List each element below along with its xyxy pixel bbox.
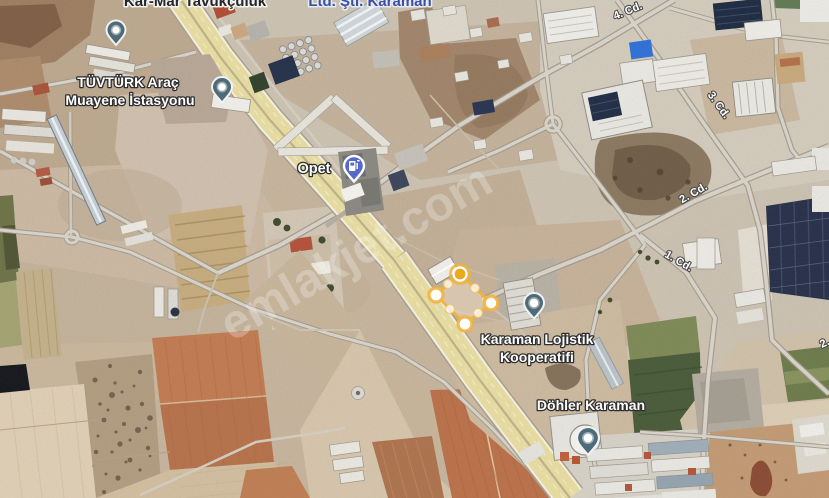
svg-text:Karaman Lojistik: Karaman Lojistik	[481, 331, 594, 347]
svg-text:Muayene İstasyonu: Muayene İstasyonu	[65, 92, 194, 108]
svg-text:Döhler Karaman: Döhler Karaman	[537, 397, 645, 413]
svg-text:Kar-Mar Tavukçuluk: Kar-Mar Tavukçuluk	[124, 0, 267, 10]
svg-text:TÜVTÜRK Araç: TÜVTÜRK Araç	[77, 74, 179, 90]
svg-text:Opet: Opet	[297, 161, 330, 177]
svg-text:Ltd. Şti. Karaman: Ltd. Şti. Karaman	[308, 0, 431, 10]
svg-text:Kooperatifi: Kooperatifi	[500, 349, 574, 365]
